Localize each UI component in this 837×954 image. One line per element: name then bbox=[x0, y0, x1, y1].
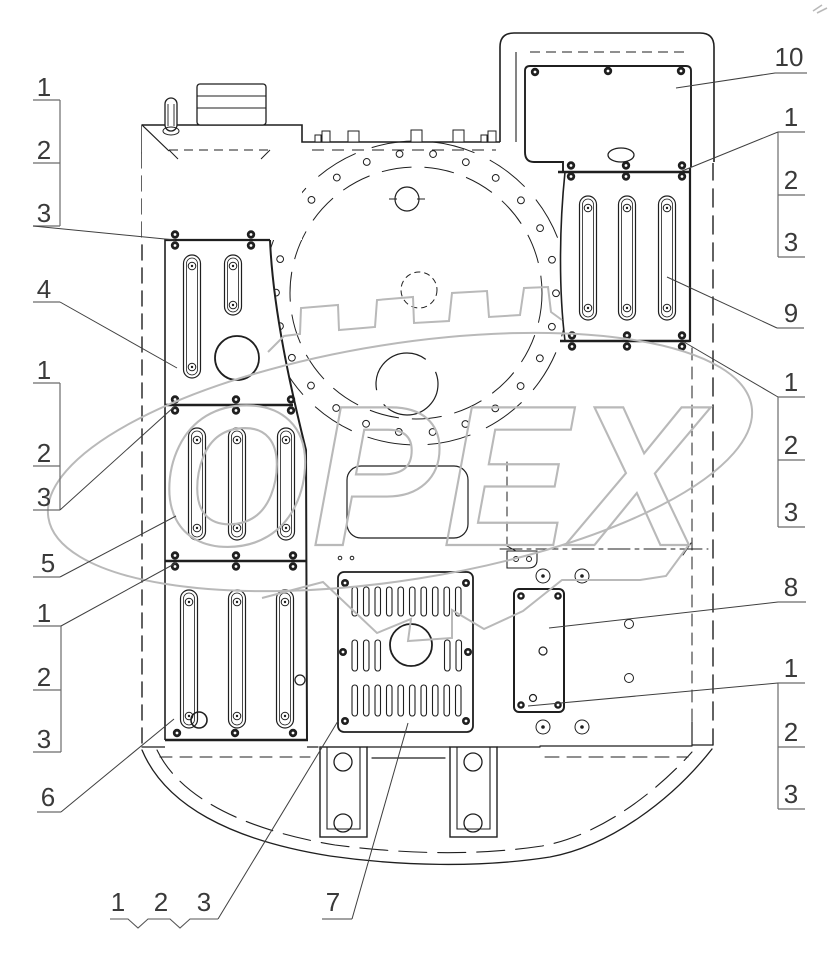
left-group-bottom: 123 bbox=[33, 563, 176, 754]
slot-hole-dot bbox=[626, 307, 628, 309]
bolt-center bbox=[465, 720, 468, 723]
bolt-center bbox=[680, 70, 683, 73]
ring-bolt-hole bbox=[518, 197, 525, 204]
callout-label: 1 bbox=[37, 355, 51, 385]
washer bbox=[536, 720, 550, 734]
slot-hole-dot bbox=[626, 207, 628, 209]
panel-10-cover bbox=[525, 66, 691, 172]
panel-8-cover bbox=[514, 589, 564, 712]
ring-bolt-hole bbox=[277, 256, 284, 263]
callout-label: 7 bbox=[326, 887, 340, 917]
bolt-center bbox=[250, 233, 253, 236]
bolt-center bbox=[467, 651, 470, 654]
callout-label: 2 bbox=[37, 438, 51, 468]
callout-label: 6 bbox=[41, 782, 55, 812]
callout-label: 2 bbox=[784, 165, 798, 195]
callout-underline bbox=[110, 919, 218, 928]
bolt-center bbox=[570, 175, 573, 178]
right-group-bottom: 123 bbox=[528, 653, 805, 809]
callout-label: 5 bbox=[41, 548, 55, 578]
ring-bolt-hole bbox=[288, 354, 295, 361]
ring-bolt-hole bbox=[537, 225, 544, 232]
callout-label: 3 bbox=[37, 724, 51, 754]
callout-leader bbox=[528, 683, 778, 706]
callout-leader bbox=[60, 302, 177, 368]
callout-4: 4 bbox=[33, 274, 177, 368]
bolt-center bbox=[534, 71, 537, 74]
slot-hole-dot bbox=[587, 207, 589, 209]
deck-hole bbox=[625, 620, 634, 629]
bolt-center bbox=[625, 164, 628, 167]
ring-bolt-hole bbox=[548, 323, 555, 330]
bolt-center bbox=[681, 164, 684, 167]
callout-label: 3 bbox=[37, 198, 51, 228]
callout-label: 2 bbox=[37, 662, 51, 692]
slot-hole-dot bbox=[666, 207, 668, 209]
filler-cap bbox=[197, 84, 266, 125]
ring-bolt-hole bbox=[396, 151, 403, 158]
ring-bolt-hole bbox=[333, 174, 340, 181]
bolt-center bbox=[626, 345, 629, 348]
bolt-center bbox=[520, 595, 523, 598]
watermark-corner-mark bbox=[813, 5, 827, 13]
bolt-center bbox=[571, 345, 574, 348]
bolt-center bbox=[607, 70, 610, 73]
callout-label: 3 bbox=[784, 227, 798, 257]
deck-lugs bbox=[315, 130, 496, 142]
callout-label: 3 bbox=[37, 482, 51, 512]
slot-hole-dot bbox=[188, 601, 190, 603]
watermark-gear bbox=[268, 287, 562, 352]
bolt-center bbox=[174, 244, 177, 247]
bolt-center bbox=[625, 175, 628, 178]
callout-label: 2 bbox=[37, 135, 51, 165]
callout-label: 1 bbox=[37, 72, 51, 102]
callout-label: 2 bbox=[784, 430, 798, 460]
bolt-center bbox=[681, 345, 684, 348]
bolt-center bbox=[234, 732, 237, 735]
deck-hole bbox=[625, 674, 634, 683]
slot-hole-dot bbox=[284, 601, 286, 603]
watermark-text: OPEX bbox=[160, 365, 711, 588]
slot-hole-dot bbox=[284, 715, 286, 717]
callout-leader bbox=[60, 516, 176, 577]
slot-hole-dot bbox=[232, 265, 234, 267]
callout-leader bbox=[61, 719, 174, 812]
mount-bracket bbox=[320, 747, 367, 837]
callout-leader bbox=[60, 406, 175, 510]
ring-bolt-hole bbox=[553, 290, 560, 297]
vent-center-hole bbox=[390, 624, 432, 666]
ring-bolt-hole bbox=[308, 196, 315, 203]
callout-label: 1 bbox=[784, 367, 798, 397]
bolt-center bbox=[570, 164, 573, 167]
bolt-center bbox=[250, 244, 253, 247]
bolt-center bbox=[342, 651, 345, 654]
ring-bolt-hole bbox=[549, 256, 556, 263]
ring-bolt-hole bbox=[492, 174, 499, 181]
washer bbox=[575, 720, 589, 734]
callout-label: 2 bbox=[784, 717, 798, 747]
callout-label: 1 bbox=[784, 653, 798, 683]
bolt-center bbox=[344, 720, 347, 723]
callout-label: 8 bbox=[784, 572, 798, 602]
slot-hole-dot bbox=[666, 307, 668, 309]
mount-bracket bbox=[450, 747, 497, 837]
callout-label: 9 bbox=[784, 298, 798, 328]
callout-label: 1 bbox=[784, 102, 798, 132]
pilot-hole bbox=[395, 187, 419, 211]
callout-6: 6 bbox=[37, 719, 174, 812]
callout-label: 2 bbox=[154, 887, 168, 917]
tank-block bbox=[142, 84, 500, 240]
slot-hole-dot bbox=[587, 307, 589, 309]
bolt-center bbox=[174, 233, 177, 236]
ring-bolt-hole bbox=[462, 159, 469, 166]
callout-label: 10 bbox=[775, 42, 804, 72]
callout-leader bbox=[549, 602, 778, 628]
slot-hole-dot bbox=[188, 715, 190, 717]
callout-label: 1 bbox=[37, 598, 51, 628]
ring-bolt-hole bbox=[430, 151, 437, 158]
bolt-center bbox=[626, 334, 629, 337]
callout-label: 4 bbox=[37, 274, 51, 304]
breather-pipe bbox=[165, 98, 177, 131]
callout-label: 3 bbox=[197, 887, 211, 917]
panel-9-cover bbox=[558, 168, 691, 342]
ring-bolt-hole bbox=[363, 159, 370, 166]
slot-hole-dot bbox=[232, 304, 234, 306]
skirt-inner bbox=[157, 750, 692, 853]
callout-label: 1 bbox=[111, 887, 125, 917]
vent-panel bbox=[338, 572, 473, 732]
slot-hole-dot bbox=[236, 601, 238, 603]
bolt-center bbox=[292, 732, 295, 735]
bolt-center bbox=[557, 704, 560, 707]
bolt-center bbox=[681, 334, 684, 337]
slot-hole-dot bbox=[236, 715, 238, 717]
bolt-center bbox=[557, 595, 560, 598]
skirt-outer bbox=[142, 749, 712, 864]
callout-label: 3 bbox=[784, 779, 798, 809]
diagram-canvas: OPEX 12341235123612371012391238123 bbox=[0, 0, 837, 954]
mount-brackets bbox=[320, 747, 497, 837]
bolt-center bbox=[520, 704, 523, 707]
parts-diagram: OPEX 12341235123612371012391238123 bbox=[0, 0, 837, 954]
ring-bolt-hole bbox=[536, 355, 543, 362]
slot-hole-dot bbox=[191, 265, 193, 267]
bolt-center bbox=[176, 732, 179, 735]
bolt-center bbox=[681, 175, 684, 178]
callout-label: 3 bbox=[784, 497, 798, 527]
center-hidden-circle bbox=[401, 272, 437, 308]
